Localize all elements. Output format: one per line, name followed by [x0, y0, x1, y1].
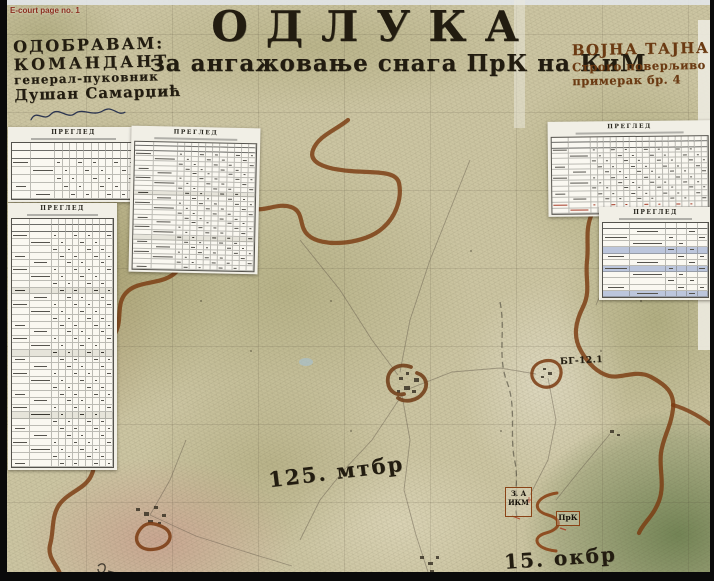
unit-box-line: ПрК	[557, 513, 579, 522]
unit-box-3a-ikm: З. А ИКМ	[505, 487, 532, 517]
table-title: ПРЕГЛЕД	[551, 123, 709, 131]
table-grid	[132, 140, 258, 272]
table-subtitle-line	[619, 218, 692, 220]
scanned-decision-map-page: E-court page no. 1 ОДОБРАВАМ: КОМАНДАНТ …	[0, 0, 714, 581]
scan-frame-left	[0, 0, 7, 581]
classification-copy-number: примерак бр. 4	[572, 72, 710, 89]
classification-block: ВОЈНА ТАЈНА Строго поверљиво примерак бр…	[572, 39, 711, 89]
table-grid	[551, 135, 710, 215]
table-subtitle-line	[576, 131, 683, 134]
table-title: ПРЕГЛЕД	[134, 129, 257, 138]
podujevo-loop	[532, 361, 561, 388]
scan-frame-bottom	[0, 572, 714, 581]
classification-strogo-poverljivo: Строго поверљиво	[572, 58, 710, 75]
table-pregled-upper-left: ПРЕГЛЕД	[8, 127, 139, 202]
decision-subtitle: за ангажовање снага ПрК на КиМ	[150, 50, 580, 77]
table-pregled-right: ПРЕГЛЕД	[599, 207, 712, 300]
table-grid	[602, 222, 709, 298]
table-subtitle-line	[31, 138, 116, 140]
unit-box-prk: ПрК	[556, 511, 580, 526]
ecourt-page-label: E-court page no. 1	[10, 6, 80, 15]
table-title: ПРЕГЛЕД	[602, 210, 709, 217]
table-pregled-left-tall: ПРЕГЛЕД	[8, 203, 117, 470]
kim-boundary-east-spur	[673, 405, 710, 424]
classification-vojna-tajna: ВОЈНА ТАЈНА	[572, 39, 710, 60]
table-pregled-center: ПРЕГЛЕД	[128, 126, 260, 275]
pristina-ring	[388, 366, 426, 401]
mitrovica-loop	[137, 524, 170, 550]
table-pregled-upper-right: ПРЕГЛЕД	[548, 120, 713, 217]
decision-title: ОДЛУКА	[150, 5, 580, 49]
table-grid	[11, 142, 136, 200]
dashed-admin-line	[500, 302, 517, 517]
lake-symbol	[299, 358, 313, 366]
table-subtitle-line	[154, 137, 238, 141]
scan-frame-right	[710, 0, 714, 581]
table-subtitle-line	[27, 214, 97, 216]
signature-scribble	[29, 103, 129, 126]
table-title: ПРЕГЛЕД	[11, 206, 114, 213]
decision-title-block: ОДЛУКА за ангажовање снага ПрК на КиМ	[150, 5, 580, 77]
table-grid	[11, 218, 114, 468]
topographic-map: E-court page no. 1 ОДОБРАВАМ: КОМАНДАНТ …	[0, 0, 714, 581]
approval-line-name: Душан Самарџић	[14, 83, 181, 104]
unit-box-line: ИКМ	[506, 499, 531, 508]
table-title: ПРЕГЛЕД	[11, 130, 136, 137]
